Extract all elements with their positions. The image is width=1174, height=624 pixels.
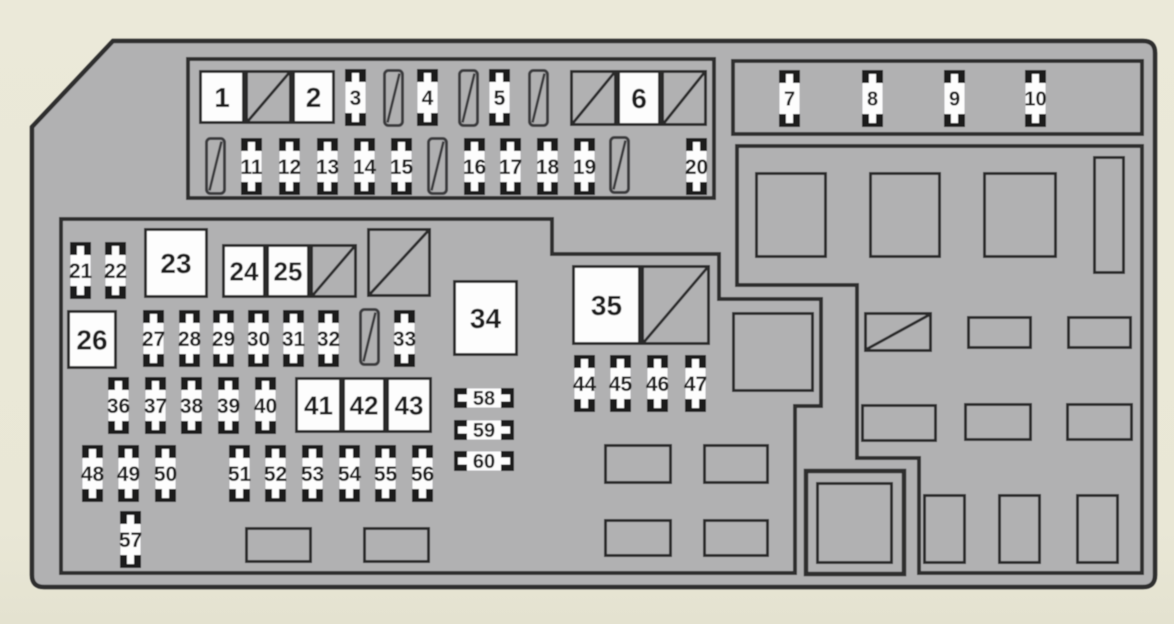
svg-text:38: 38 — [180, 395, 204, 418]
svg-text:54: 54 — [338, 463, 362, 486]
svg-text:6: 6 — [631, 83, 647, 114]
svg-text:45: 45 — [609, 373, 633, 396]
svg-text:19: 19 — [573, 156, 596, 179]
svg-text:29: 29 — [212, 328, 235, 351]
svg-text:60: 60 — [473, 451, 495, 473]
svg-text:32: 32 — [317, 328, 340, 351]
svg-text:17: 17 — [499, 156, 522, 179]
svg-text:53: 53 — [301, 463, 324, 486]
svg-text:5: 5 — [494, 87, 506, 110]
svg-text:4: 4 — [422, 87, 434, 110]
svg-text:30: 30 — [247, 328, 270, 351]
svg-text:39: 39 — [217, 395, 240, 418]
svg-text:40: 40 — [254, 395, 277, 418]
svg-text:27: 27 — [142, 328, 165, 351]
svg-text:55: 55 — [374, 463, 398, 486]
svg-text:57: 57 — [119, 529, 142, 552]
svg-text:49: 49 — [117, 463, 140, 486]
svg-text:59: 59 — [473, 420, 495, 442]
svg-text:8: 8 — [867, 89, 878, 111]
svg-text:12: 12 — [278, 156, 301, 179]
svg-text:18: 18 — [536, 156, 560, 179]
svg-text:7: 7 — [784, 89, 795, 111]
svg-text:13: 13 — [316, 156, 339, 179]
svg-text:2: 2 — [306, 82, 322, 113]
svg-text:35: 35 — [591, 290, 622, 321]
svg-text:25: 25 — [274, 256, 303, 286]
svg-text:15: 15 — [390, 156, 414, 179]
svg-text:22: 22 — [104, 260, 127, 283]
svg-text:33: 33 — [393, 328, 416, 351]
svg-text:34: 34 — [470, 303, 502, 334]
svg-text:37: 37 — [144, 395, 167, 418]
svg-text:14: 14 — [353, 156, 377, 179]
svg-text:41: 41 — [304, 390, 333, 420]
svg-text:58: 58 — [473, 388, 495, 410]
svg-text:11: 11 — [240, 156, 263, 179]
svg-text:47: 47 — [684, 373, 707, 396]
svg-text:3: 3 — [350, 87, 362, 110]
svg-text:48: 48 — [81, 463, 105, 486]
svg-text:51: 51 — [228, 463, 252, 486]
svg-text:1: 1 — [214, 82, 230, 113]
svg-text:43: 43 — [395, 390, 424, 420]
svg-text:42: 42 — [350, 390, 379, 420]
svg-text:9: 9 — [949, 89, 960, 111]
svg-text:28: 28 — [178, 328, 202, 351]
svg-text:26: 26 — [76, 325, 107, 356]
svg-text:16: 16 — [463, 156, 486, 179]
svg-text:36: 36 — [107, 395, 130, 418]
svg-text:21: 21 — [69, 260, 93, 283]
svg-text:50: 50 — [154, 463, 177, 486]
svg-text:52: 52 — [264, 463, 287, 486]
svg-text:24: 24 — [230, 256, 259, 286]
svg-text:44: 44 — [573, 373, 597, 396]
svg-text:10: 10 — [1024, 89, 1046, 111]
svg-text:31: 31 — [282, 328, 306, 351]
svg-text:56: 56 — [411, 463, 434, 486]
svg-text:20: 20 — [685, 156, 708, 179]
svg-text:46: 46 — [646, 373, 669, 396]
svg-text:23: 23 — [160, 248, 191, 279]
